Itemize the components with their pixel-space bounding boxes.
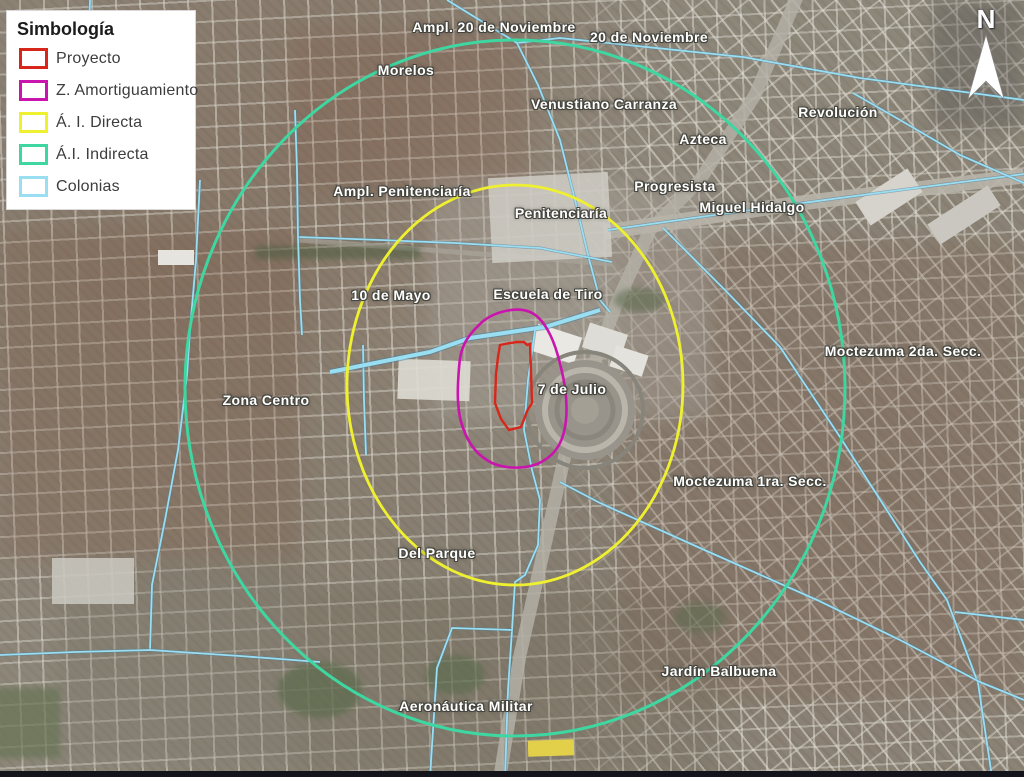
legend-item-indirecta: Á.I. Indirecta	[19, 144, 189, 165]
map-label-20-de-noviembre: 20 de Noviembre	[590, 29, 708, 45]
legend-label-directa: Á. I. Directa	[56, 114, 142, 132]
legend-item-colonias: Colonias	[19, 176, 189, 197]
legend-swatch-colonias	[19, 176, 48, 197]
legend-item-directa: Á. I. Directa	[19, 112, 189, 133]
map-label-del-parque: Del Parque	[398, 545, 475, 561]
legend-swatch-amortiguamiento	[19, 80, 48, 101]
colonia-boundary	[295, 110, 302, 335]
map-label-aeronautica-militar: Aeronáutica Militar	[399, 698, 533, 714]
map-label-10-de-mayo: 10 de Mayo	[351, 287, 430, 303]
colonia-boundary-casing	[447, 0, 1024, 100]
map-label-moctezuma-2da-secc: Moctezuma 2da. Secc.	[825, 343, 982, 359]
colonia-boundary-casing	[0, 650, 320, 662]
map-label-azteca: Azteca	[679, 131, 727, 147]
legend-panel: Simbología ProyectoZ. AmortiguamientoÁ. …	[6, 10, 196, 210]
map-label-progresista: Progresista	[634, 178, 715, 194]
map-label-ampl-penitenciaria: Ampl. Penitenciaría	[333, 183, 471, 199]
legend-label-proyecto: Proyecto	[56, 50, 121, 68]
legend-swatch-indirecta	[19, 144, 48, 165]
indirect-influence-ring	[185, 40, 845, 736]
legend-items: ProyectoZ. AmortiguamientoÁ. I. DirectaÁ…	[15, 48, 189, 197]
map-figure: Ampl. 20 de Noviembre20 de NoviembreMore…	[0, 0, 1024, 777]
colonia-boundary	[955, 612, 1024, 620]
legend-item-amortiguamiento: Z. Amortiguamiento	[19, 80, 189, 101]
legend-label-colonias: Colonias	[56, 178, 120, 196]
north-indicator: N	[956, 4, 1016, 114]
legend-title: Simbología	[17, 19, 189, 40]
vegetation	[0, 246, 726, 758]
map-label-miguel-hidalgo: Miguel Hidalgo	[699, 199, 804, 215]
map-label-ampl-20-de-noviembre: Ampl. 20 de Noviembre	[412, 19, 575, 35]
legend-swatch-proyecto	[19, 48, 48, 69]
north-arrow-icon	[966, 33, 1006, 101]
colonia-boundary-casing	[560, 482, 1024, 700]
map-label-7-de-julio: 7 de Julio	[538, 381, 607, 397]
legend-label-amortiguamiento: Z. Amortiguamiento	[56, 82, 198, 100]
legend-item-proyecto: Proyecto	[19, 48, 189, 69]
colonia-boundary	[447, 0, 1024, 100]
image-bottom-border	[0, 771, 1024, 777]
map-label-jardin-balbuena: Jardín Balbuena	[662, 663, 777, 679]
map-label-revolucion: Revolución	[798, 104, 877, 120]
north-label: N	[956, 4, 1016, 35]
map-label-moctezuma-1ra-secc: Moctezuma 1ra. Secc.	[673, 473, 827, 489]
legend-swatch-directa	[19, 112, 48, 133]
map-label-morelos: Morelos	[378, 62, 434, 78]
map-label-escuela-de-tiro: Escuela de Tiro	[493, 286, 602, 302]
map-label-penitenciaria: Penitenciaría	[515, 205, 607, 221]
map-label-zona-centro: Zona Centro	[223, 392, 310, 408]
stadium	[527, 352, 643, 468]
map-label-venustiano-carranza: Venustiano Carranza	[531, 96, 677, 112]
buildings	[52, 168, 1001, 756]
legend-label-indirecta: Á.I. Indirecta	[56, 146, 149, 164]
